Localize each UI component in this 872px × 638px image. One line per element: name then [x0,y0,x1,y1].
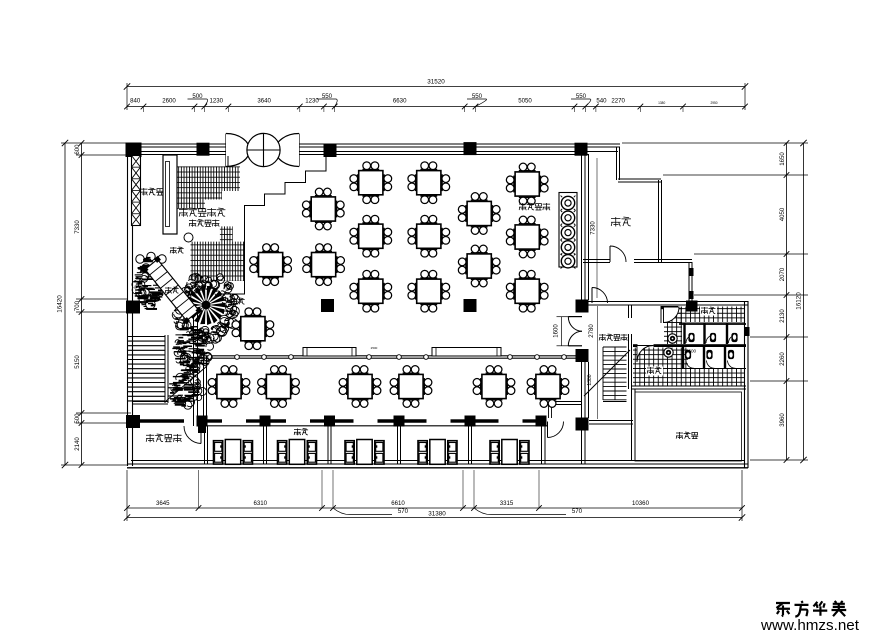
svg-text:1650: 1650 [779,152,786,166]
svg-text:2130: 2130 [779,309,786,323]
svg-text:2260: 2260 [779,352,786,366]
svg-text:1380: 1380 [658,101,665,105]
svg-text:840: 840 [130,98,141,105]
svg-text:2140: 2140 [74,437,81,451]
svg-text:1500: 1500 [686,349,697,354]
svg-text:700: 700 [74,300,81,311]
svg-text:1600: 1600 [554,324,560,338]
svg-text:3960: 3960 [779,413,786,427]
svg-text:www.hmzs.net: www.hmzs.net [760,617,860,634]
svg-text:4050: 4050 [779,207,786,221]
svg-text:600: 600 [74,144,81,155]
svg-text:570: 570 [398,508,409,515]
svg-text:1230: 1230 [210,98,224,105]
svg-text:16420: 16420 [57,295,64,313]
svg-text:2500: 2500 [371,346,378,350]
svg-text:3640: 3640 [257,98,271,105]
svg-text:540: 540 [596,98,607,105]
svg-text:10360: 10360 [632,500,650,507]
svg-text:2950: 2950 [710,101,717,105]
svg-text:31520: 31520 [427,79,445,86]
svg-text:2780: 2780 [589,324,595,338]
svg-text:1230: 1230 [305,98,319,105]
svg-text:5050: 5050 [518,98,532,105]
svg-text:3645: 3645 [156,500,170,507]
svg-text:31380: 31380 [428,511,446,518]
svg-text:16120: 16120 [796,292,803,310]
svg-text:2270: 2270 [611,98,625,105]
svg-text:500: 500 [74,413,81,424]
svg-text:6610: 6610 [391,500,405,507]
svg-text:7330: 7330 [591,221,597,235]
svg-text:6630: 6630 [393,98,407,105]
svg-text:2070: 2070 [779,267,786,281]
svg-text:3315: 3315 [500,500,514,507]
svg-text:5150: 5150 [74,355,81,369]
svg-text:6310: 6310 [254,500,268,507]
svg-text:7330: 7330 [74,220,81,234]
svg-text:570: 570 [572,508,583,515]
svg-text:1380: 1380 [587,374,593,385]
svg-text:2600: 2600 [162,98,176,105]
